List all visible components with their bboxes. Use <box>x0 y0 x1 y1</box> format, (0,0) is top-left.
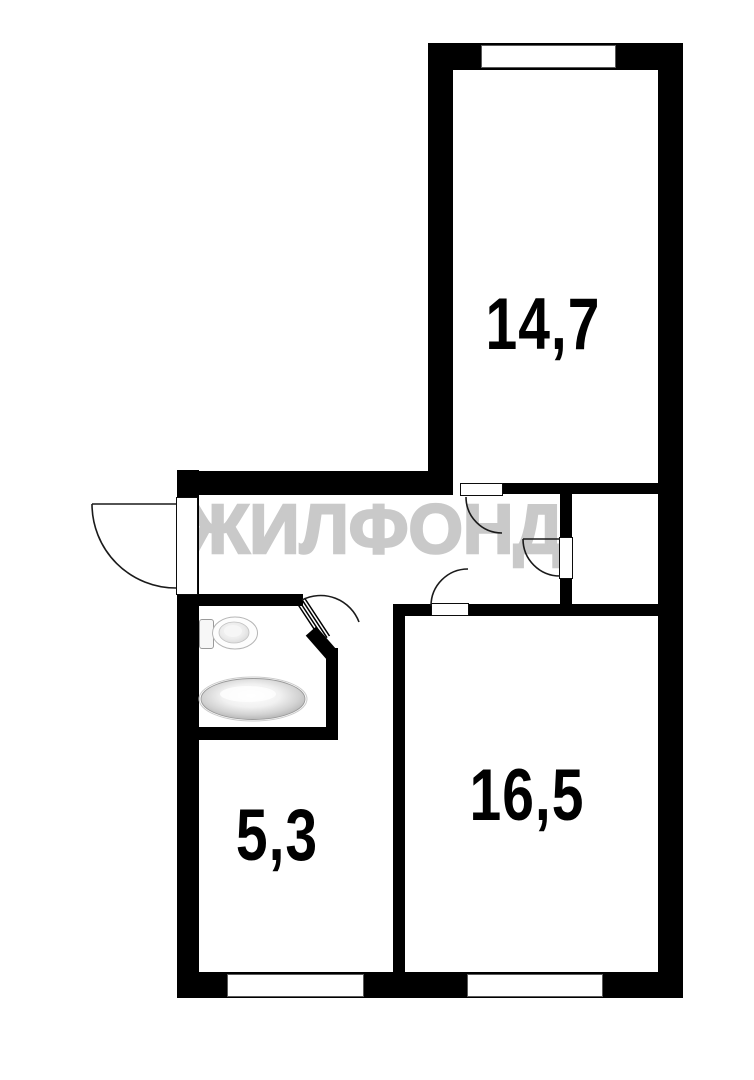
bathroom-door <box>297 596 359 641</box>
room-bottom-right-door-arc <box>431 569 468 606</box>
room-top-area-label: 14,7 <box>463 289 623 362</box>
entry-door-arc <box>92 504 176 588</box>
floor-plan: ЖИЛФОНД <box>0 0 754 1080</box>
toilet-icon <box>200 617 258 649</box>
room-bottom-left-area-label: 5,3 <box>197 800 357 873</box>
sink-icon <box>199 677 307 721</box>
entry-door <box>92 504 176 588</box>
room-top-door-arc <box>466 497 502 533</box>
closet-door-arc <box>523 539 560 576</box>
room-bottom-right-area-label: 16,5 <box>447 760 607 833</box>
closet-door <box>523 539 560 576</box>
